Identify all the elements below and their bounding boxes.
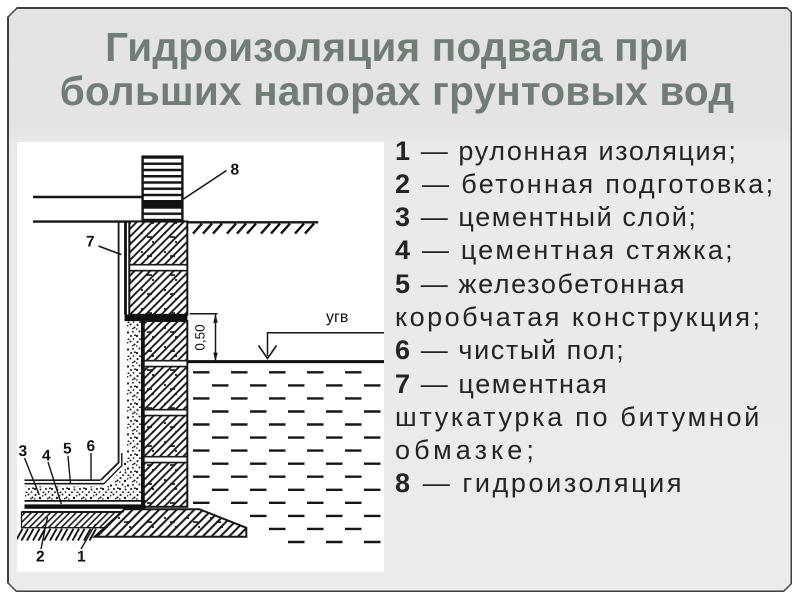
svg-text:6: 6 xyxy=(87,438,96,455)
svg-text:8: 8 xyxy=(231,162,240,179)
svg-text:2: 2 xyxy=(36,549,45,566)
svg-text:4: 4 xyxy=(42,448,51,465)
svg-text:3: 3 xyxy=(19,443,28,460)
svg-text:5: 5 xyxy=(63,441,72,458)
svg-text:угв: угв xyxy=(326,309,348,326)
svg-text:0,50: 0,50 xyxy=(193,324,208,350)
svg-text:7: 7 xyxy=(86,234,95,251)
svg-text:1: 1 xyxy=(77,549,86,566)
